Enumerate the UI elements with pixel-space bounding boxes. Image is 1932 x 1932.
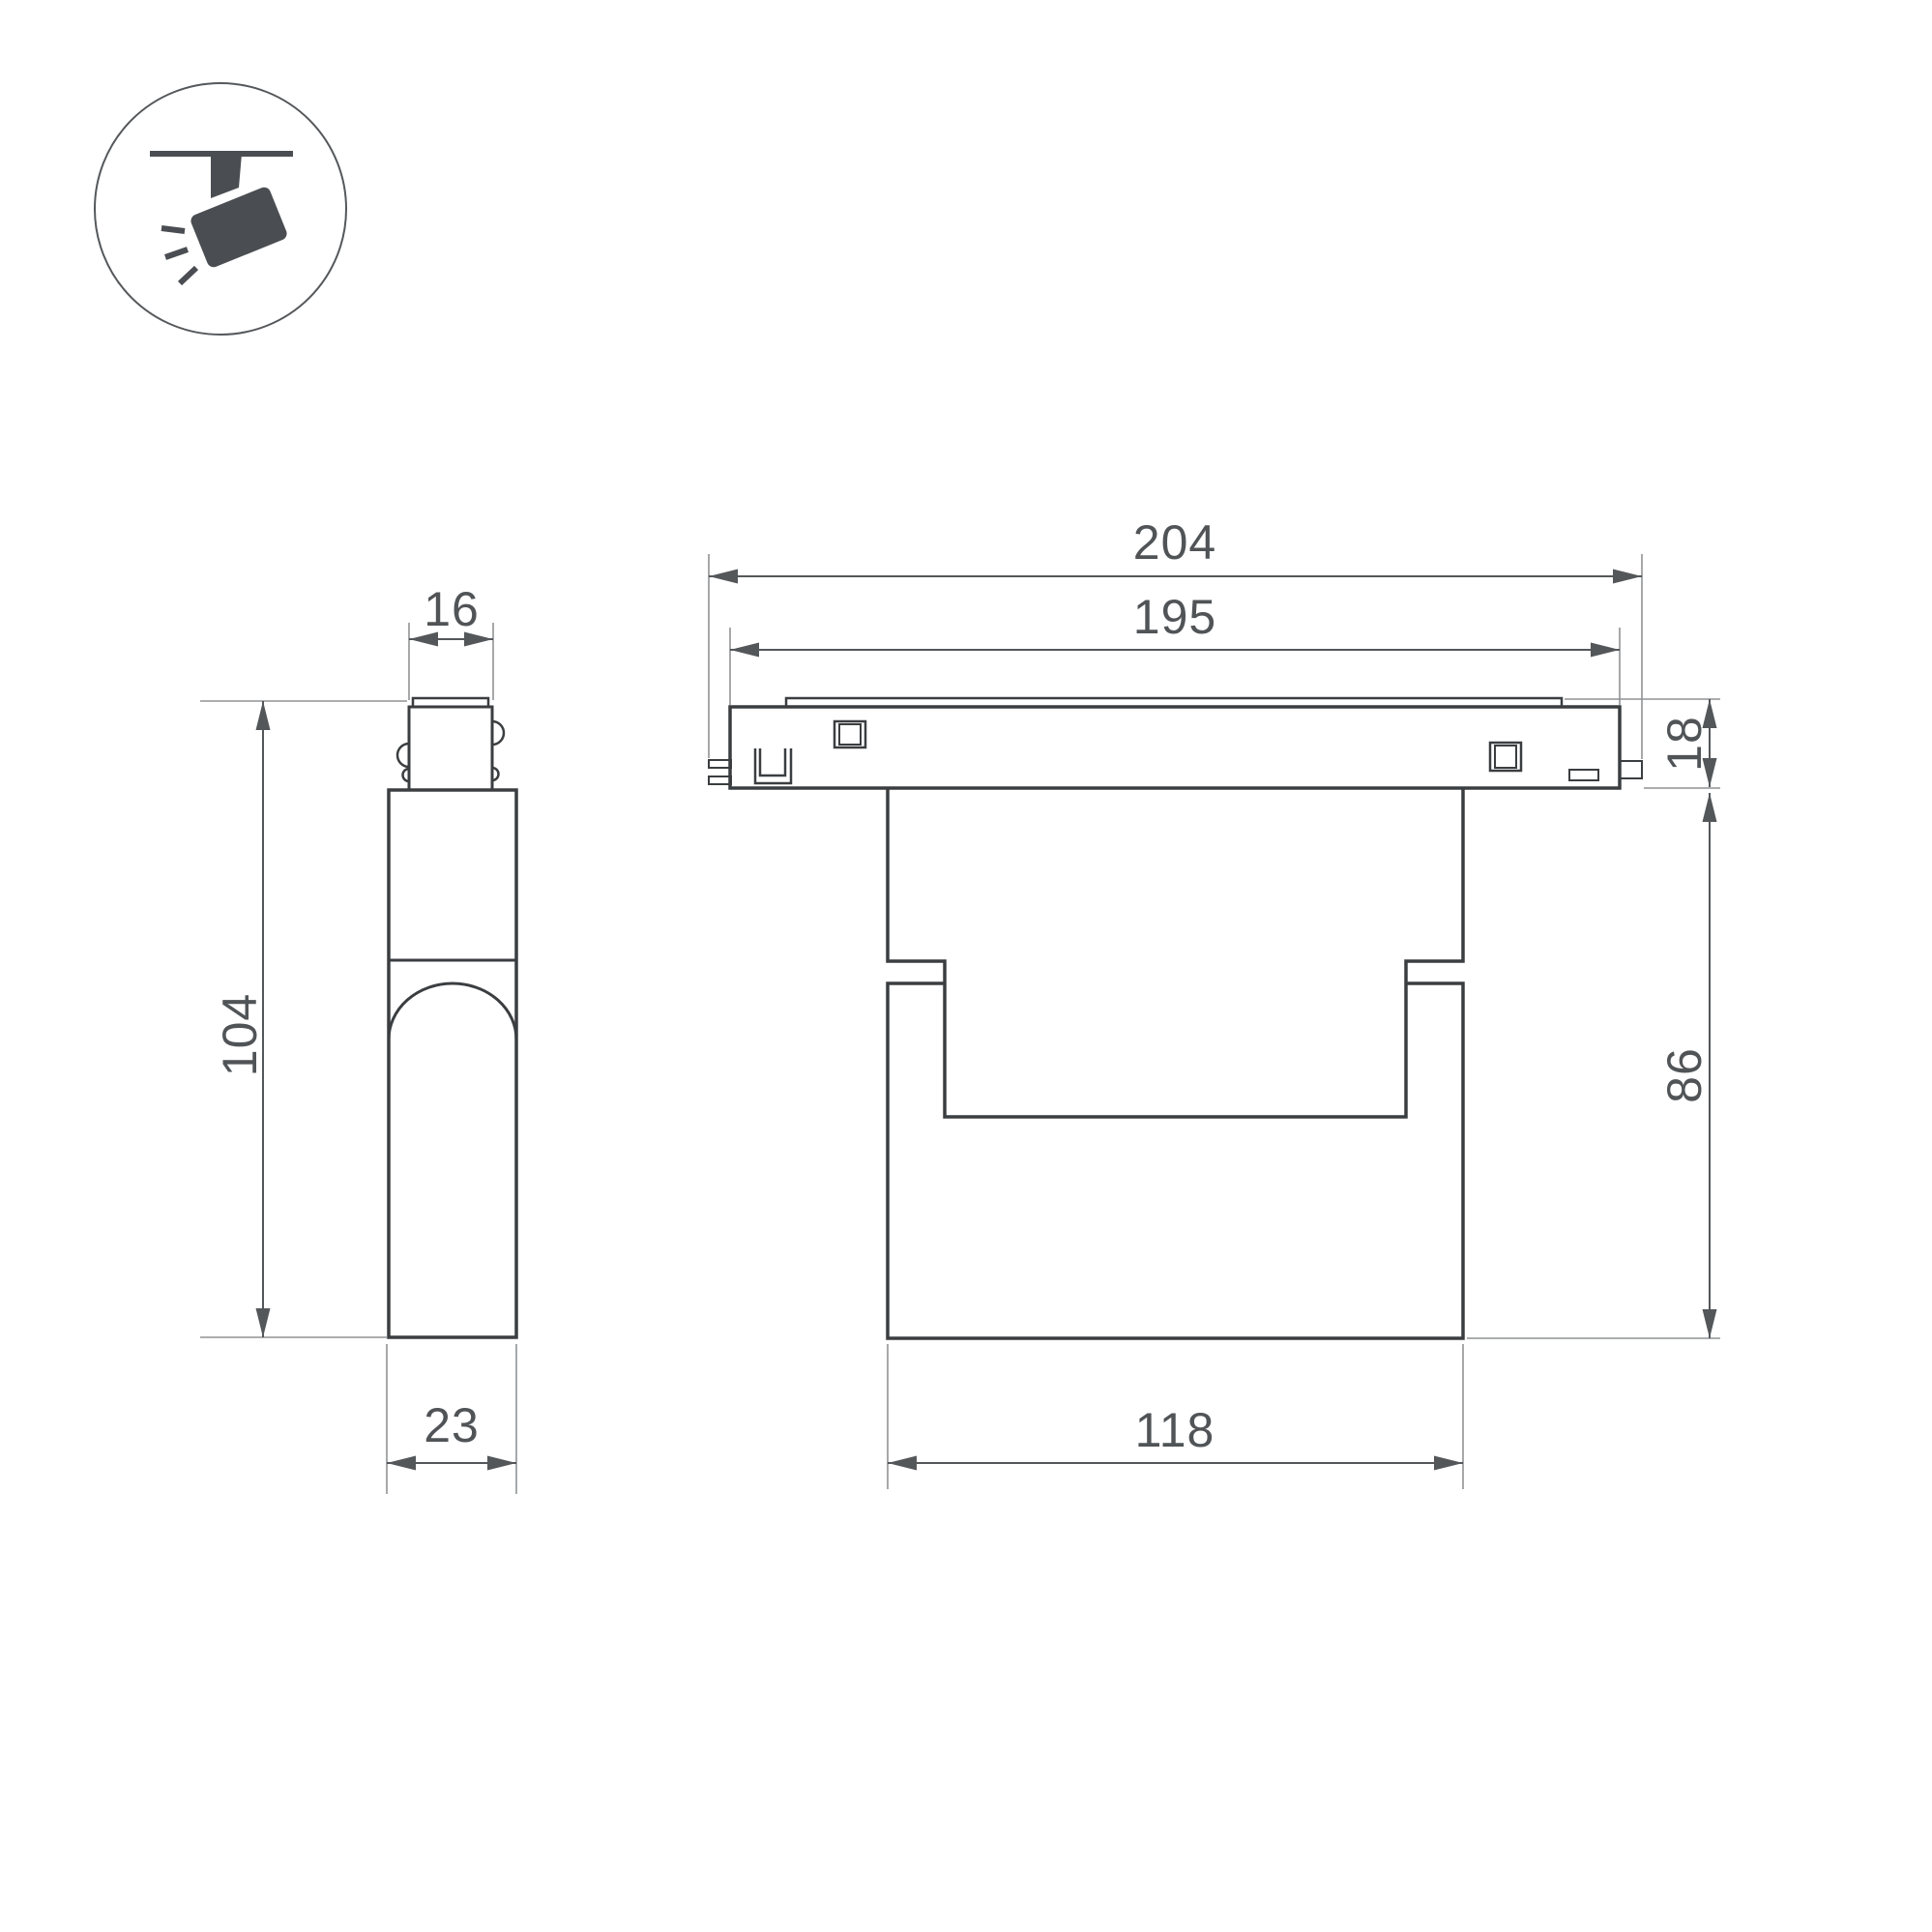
front-contact-tab-left-lower [709,776,731,784]
front-view [709,698,1642,1338]
drawing-svg: 16 104 23 204 195 18 86 118 [0,0,1932,1932]
arrow-195-left [730,643,759,658]
dim-label-height: 104 [213,993,267,1076]
dim-label-body-height: 86 [1657,1047,1712,1103]
side-view [389,698,516,1337]
side-body [389,790,516,1337]
technical-drawing-page: 16 104 23 204 195 18 86 118 [0,0,1932,1932]
arrow-118-left [888,1456,917,1471]
front-contact-tab-left-upper [709,760,731,768]
arrow-86-bottom [1703,1309,1717,1338]
arrow-23-right [487,1456,516,1471]
side-track-connector [409,707,492,790]
side-clip-bump-left [397,744,409,767]
front-body-upper-outline [888,789,1463,1117]
arrow-204-right [1613,570,1642,584]
arrow-104-bottom [256,1308,271,1337]
dim-label-overall-length: 204 [1133,515,1216,570]
dim-label-track-height: 18 [1657,716,1712,772]
dim-label-depth: 23 [424,1398,480,1452]
dim-label-track-length: 195 [1133,590,1216,644]
dim-label-body-width: 118 [1135,1403,1215,1457]
icon-ray-1 [161,228,185,231]
front-body-lower-outline [888,983,1463,1338]
arrow-86-top [1703,793,1717,822]
arrow-195-right [1591,643,1620,658]
track-spotlight-icon [95,83,346,335]
front-contact-tab-right [1620,761,1642,778]
side-clip-bump-right-upper [492,721,504,745]
arrow-104-top [256,701,271,730]
arrow-23-left [387,1456,416,1471]
arrow-204-left [709,570,738,584]
dim-label-top-width: 16 [424,582,480,636]
arrow-118-right [1434,1456,1463,1471]
